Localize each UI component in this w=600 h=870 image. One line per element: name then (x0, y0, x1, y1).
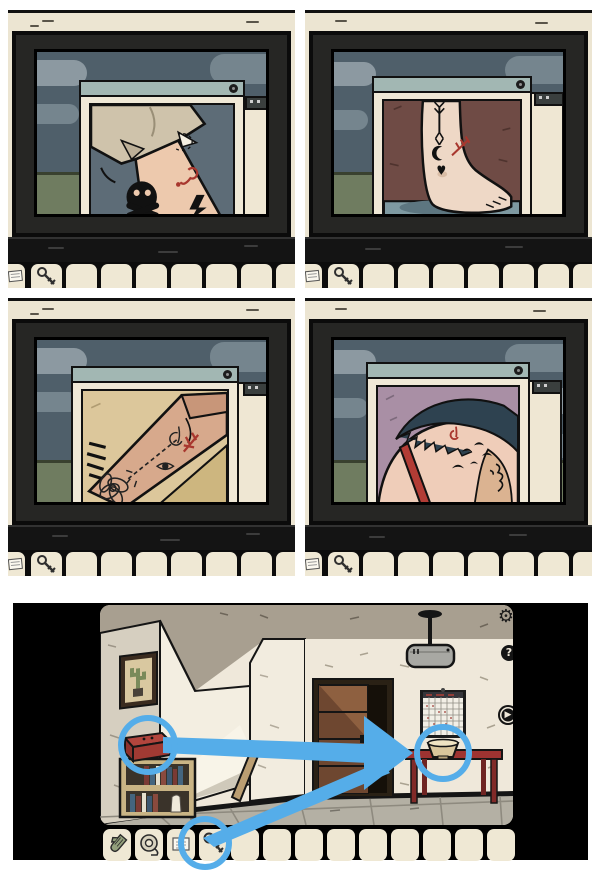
inventory-slot-empty[interactable] (327, 829, 355, 861)
help-icon[interactable]: ? (501, 645, 513, 661)
window-buttons (245, 96, 269, 110)
inventory-slot-empty[interactable] (363, 264, 394, 288)
inventory-slot-empty[interactable] (468, 264, 499, 288)
scene-panel-wrist (8, 298, 295, 576)
inventory-slot-empty[interactable] (276, 264, 295, 288)
inventory-slot-key[interactable] (31, 552, 62, 576)
tv-screen[interactable] (331, 49, 566, 217)
inventory-slot-empty[interactable] (433, 552, 464, 576)
wall-calendar[interactable] (420, 688, 466, 738)
scene-panel-arm (8, 10, 295, 288)
inventory-bar (305, 550, 592, 576)
window-title-bar (81, 82, 243, 97)
inventory-slot-note[interactable] (8, 264, 25, 288)
inventory-slot-empty[interactable] (206, 552, 237, 576)
photo-window[interactable] (71, 366, 239, 505)
inventory-slot-empty[interactable] (263, 829, 291, 861)
photo-window[interactable] (366, 362, 530, 505)
inventory-slot-empty[interactable] (295, 829, 323, 861)
tv-set (12, 31, 291, 237)
inventory-slot-empty[interactable] (171, 552, 202, 576)
close-icon[interactable] (514, 366, 523, 375)
room-art (100, 605, 513, 825)
inventory-slot-tape[interactable] (135, 829, 163, 861)
bowl[interactable] (428, 740, 458, 760)
inventory-slot-empty[interactable] (241, 264, 272, 288)
cloud (34, 104, 79, 124)
inventory-slot-empty[interactable] (503, 552, 534, 576)
bookshelf[interactable] (120, 759, 195, 817)
inventory-slot-glove[interactable] (103, 829, 131, 861)
inventory-slot-empty[interactable] (433, 264, 464, 288)
tv-stand (8, 237, 295, 264)
inventory-slot-key[interactable] (199, 829, 227, 861)
inventory-slot-empty[interactable] (423, 829, 451, 861)
inventory-bar (305, 262, 592, 288)
tv-set (309, 319, 588, 525)
inventory-slot-empty[interactable] (391, 829, 419, 861)
inventory-slot-empty[interactable] (136, 552, 167, 576)
inventory-bar (8, 262, 295, 288)
photo-shoulder (376, 385, 520, 505)
tv-set (12, 319, 291, 525)
close-icon[interactable] (516, 80, 525, 89)
inventory-slot-note[interactable] (167, 829, 195, 861)
inventory-slot-empty[interactable] (487, 829, 515, 861)
photo-window[interactable] (372, 76, 532, 217)
inventory-slot-empty[interactable] (398, 552, 429, 576)
red-box[interactable] (125, 733, 170, 761)
inventory-slot-empty[interactable] (101, 552, 132, 576)
wall-mark (42, 20, 54, 22)
inventory-slot-note[interactable] (305, 552, 322, 576)
wall-strip (8, 13, 295, 31)
room-viewport: ⚙ ? ▶ (100, 605, 513, 825)
inventory-slot-empty[interactable] (276, 552, 295, 576)
inventory-slot-empty[interactable] (538, 552, 569, 576)
inventory-slot-key[interactable] (31, 264, 62, 288)
inventory-slot-empty[interactable] (468, 552, 499, 576)
inventory-slot-empty[interactable] (171, 264, 202, 288)
inventory-slot-empty[interactable] (573, 264, 592, 288)
inventory-slot-note[interactable] (305, 264, 322, 288)
tv-screen[interactable] (34, 337, 269, 505)
inventory-bar (8, 550, 295, 576)
corner-wall (250, 639, 305, 801)
photo-arm (89, 103, 235, 217)
room-screenshot-band: ⚙ ? ▶ (13, 603, 588, 860)
cactus-painting[interactable] (120, 652, 157, 709)
inventory-slot-empty[interactable] (231, 829, 259, 861)
tv-set (309, 31, 588, 237)
screenshot-collage: ⚙ ? ▶ (0, 0, 600, 870)
inventory-slot-empty[interactable] (101, 264, 132, 288)
inventory-slot-empty[interactable] (66, 552, 97, 576)
inventory-slot-empty[interactable] (359, 829, 387, 861)
close-icon[interactable] (223, 370, 232, 379)
scene-panel-shoulder (305, 298, 592, 576)
inventory-slot-empty[interactable] (455, 829, 483, 861)
inventory-slot-empty[interactable] (363, 552, 394, 576)
inventory-slot-empty[interactable] (503, 264, 534, 288)
open-door[interactable] (313, 679, 393, 797)
inventory-slot-note[interactable] (8, 552, 25, 576)
photo-wrist (81, 389, 229, 505)
scene-panel-foot (305, 10, 592, 288)
tv-screen[interactable] (331, 337, 566, 505)
inventory-slot-empty[interactable] (398, 264, 429, 288)
inventory-slot-empty[interactable] (241, 552, 272, 576)
inventory-slot-empty[interactable] (573, 552, 592, 576)
wall-mark (30, 25, 39, 27)
photo-window[interactable] (79, 80, 245, 217)
close-icon[interactable] (229, 84, 238, 93)
inventory-slot-empty[interactable] (66, 264, 97, 288)
settings-gear-icon[interactable]: ⚙ (496, 607, 513, 627)
inventory-slot-empty[interactable] (538, 264, 569, 288)
inventory-slot-key[interactable] (328, 552, 359, 576)
room-inventory-bar (103, 829, 513, 860)
photo-foot (382, 99, 522, 217)
inventory-slot-empty[interactable] (206, 264, 237, 288)
play-icon[interactable]: ▶ (498, 705, 513, 725)
wall-mark (246, 21, 259, 23)
tv-screen[interactable] (34, 49, 269, 217)
inventory-slot-empty[interactable] (136, 264, 167, 288)
door-knob[interactable] (360, 735, 366, 743)
inventory-slot-key[interactable] (328, 264, 359, 288)
